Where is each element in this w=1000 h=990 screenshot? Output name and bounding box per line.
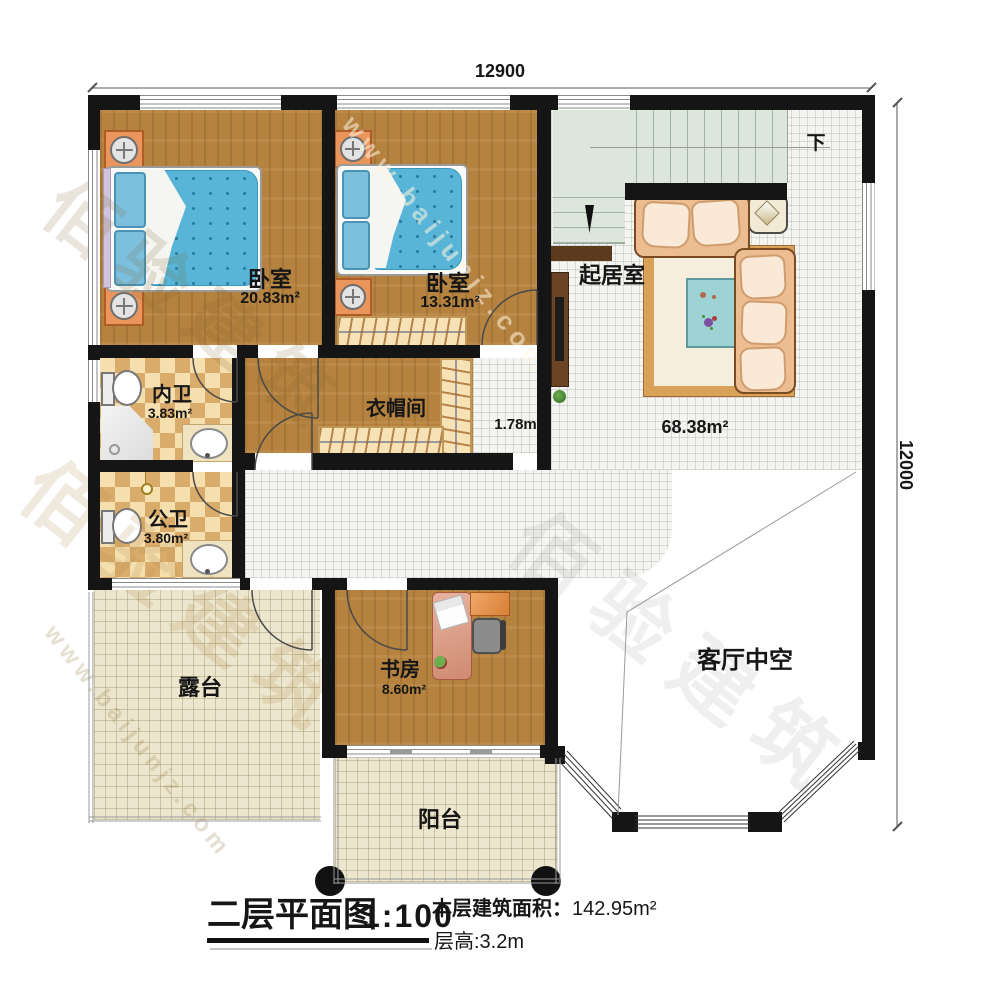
- stairs-guide-line: [590, 147, 830, 148]
- room-area-bedroom2: 13.31m²: [408, 295, 492, 312]
- window: [140, 95, 281, 110]
- sliding-door: [347, 745, 540, 758]
- room-label-balcony: 阳台: [390, 808, 490, 831]
- stairs-down-label: 下: [800, 134, 832, 154]
- sofa-cushion: [739, 254, 787, 300]
- sofa-two-seat: [634, 194, 750, 258]
- wall: [237, 345, 258, 358]
- room-label-living: 起居室: [552, 264, 672, 287]
- nightstand: [334, 278, 372, 316]
- window: [862, 183, 875, 290]
- sofa-three-seat: [734, 248, 796, 394]
- wall: [88, 345, 193, 358]
- lamp-icon: [340, 136, 366, 162]
- room-area-public-bath: 3.80m²: [126, 531, 206, 546]
- bay-post: [612, 812, 638, 832]
- room-area-living: 68.38m²: [645, 418, 745, 437]
- window: [558, 95, 630, 110]
- room-label-void: 客厅中空: [665, 648, 825, 673]
- dimension-top: 12900: [450, 62, 550, 81]
- hallway-floor: [473, 358, 537, 453]
- sink-counter: [182, 424, 234, 462]
- hall-band-floor-rounded: [555, 470, 672, 578]
- coffee-table: [686, 278, 740, 348]
- bedroom2-wardrobe: [337, 316, 467, 348]
- wall: [862, 95, 875, 183]
- pillow: [114, 230, 146, 286]
- window: [88, 360, 100, 402]
- office-chair: [472, 618, 502, 654]
- room-area-inner-bath: 3.83m²: [130, 406, 210, 421]
- room-area-hallway: 1.78m²: [478, 417, 558, 433]
- sofa-cushion: [690, 198, 741, 247]
- flower-decor: [704, 318, 713, 327]
- lamp-icon: [110, 136, 138, 164]
- table-lamp-icon: [754, 200, 779, 225]
- sink-counter: [182, 540, 234, 578]
- pull-cord-light-icon: [145, 472, 146, 484]
- wall: [318, 345, 480, 358]
- sink-faucet-icon: [205, 569, 210, 574]
- caption: 二层平面图 1:100 本层建筑面积： 142.95m² 层高:3.2m: [0, 890, 1000, 970]
- room-label-public-bath: 公卫: [128, 510, 208, 531]
- desk-shelf: [470, 592, 510, 616]
- wall: [407, 578, 558, 590]
- wall: [88, 95, 100, 150]
- window: [337, 95, 510, 110]
- nightstand: [104, 130, 144, 170]
- room-label-study: 书房: [360, 660, 440, 681]
- caption-title: 二层平面图: [207, 898, 377, 934]
- bay-post: [748, 812, 782, 832]
- sofa-cushion: [641, 201, 691, 249]
- nightstand: [104, 286, 144, 326]
- hall-band-floor: [245, 470, 555, 578]
- wall: [88, 578, 112, 590]
- sofa-cushion: [740, 300, 788, 346]
- lamp-icon: [340, 284, 366, 310]
- wall: [537, 95, 551, 470]
- tv-cabinet: [551, 272, 569, 387]
- room-area-bedroom1: 20.83m²: [228, 291, 312, 308]
- floor-plan-canvas: 佰验建筑 www.baijunjz.com 佰验建筑 www.baijunjz.…: [0, 0, 1000, 990]
- bay-post: [545, 746, 565, 764]
- office-chair-back: [500, 620, 506, 650]
- shower-drain-icon: [109, 444, 120, 455]
- room-label-terrace: 露台: [150, 676, 250, 699]
- wall: [545, 578, 558, 758]
- wall: [322, 108, 335, 348]
- bed-headboard: [103, 168, 111, 288]
- wall: [88, 460, 193, 472]
- caption-underline: [207, 938, 429, 943]
- caption-area-value: 142.95m²: [572, 899, 657, 920]
- pillow: [342, 170, 370, 219]
- pillow: [342, 221, 370, 270]
- wall: [625, 183, 787, 200]
- window: [88, 150, 100, 345]
- wall: [240, 578, 250, 590]
- room-label-bedroom1: 卧室: [230, 268, 310, 291]
- cord-bulb: [141, 483, 153, 495]
- wall: [862, 290, 875, 752]
- wall: [312, 453, 513, 470]
- caption-area-label: 本层建筑面积：: [432, 899, 572, 920]
- sliding-panel: [390, 749, 412, 754]
- sliding-panel: [470, 749, 492, 754]
- terrace-floor: [94, 590, 320, 820]
- wall: [88, 402, 100, 590]
- bay-windows: [558, 741, 860, 828]
- side-table: [748, 194, 788, 234]
- nightstand: [334, 130, 372, 168]
- room-area-study: 8.60m²: [364, 682, 444, 697]
- pillow: [114, 172, 146, 228]
- room-label-bedroom2: 卧室: [408, 272, 488, 295]
- bay-post: [858, 742, 875, 760]
- sink-faucet-icon: [205, 453, 210, 458]
- plant-icon: [553, 390, 566, 403]
- wall: [240, 453, 255, 470]
- wall: [322, 745, 347, 758]
- wall: [630, 95, 875, 110]
- tv-wall-stub: [551, 246, 612, 261]
- room-label-cloakroom: 衣帽间: [336, 399, 456, 420]
- cup-decor: [700, 292, 706, 298]
- lamp-icon: [110, 292, 138, 320]
- window: [112, 578, 240, 590]
- caption-underline-light: [210, 948, 432, 950]
- tv-screen-icon: [555, 297, 564, 361]
- sofa-cushion: [739, 346, 787, 392]
- wall: [322, 578, 335, 758]
- stairs-lower-flight: [553, 183, 625, 244]
- room-label-inner-bath: 内卫: [132, 385, 212, 406]
- caption-floor-height: 层高:3.2m: [434, 932, 524, 953]
- dimension-right: 12000: [895, 420, 915, 510]
